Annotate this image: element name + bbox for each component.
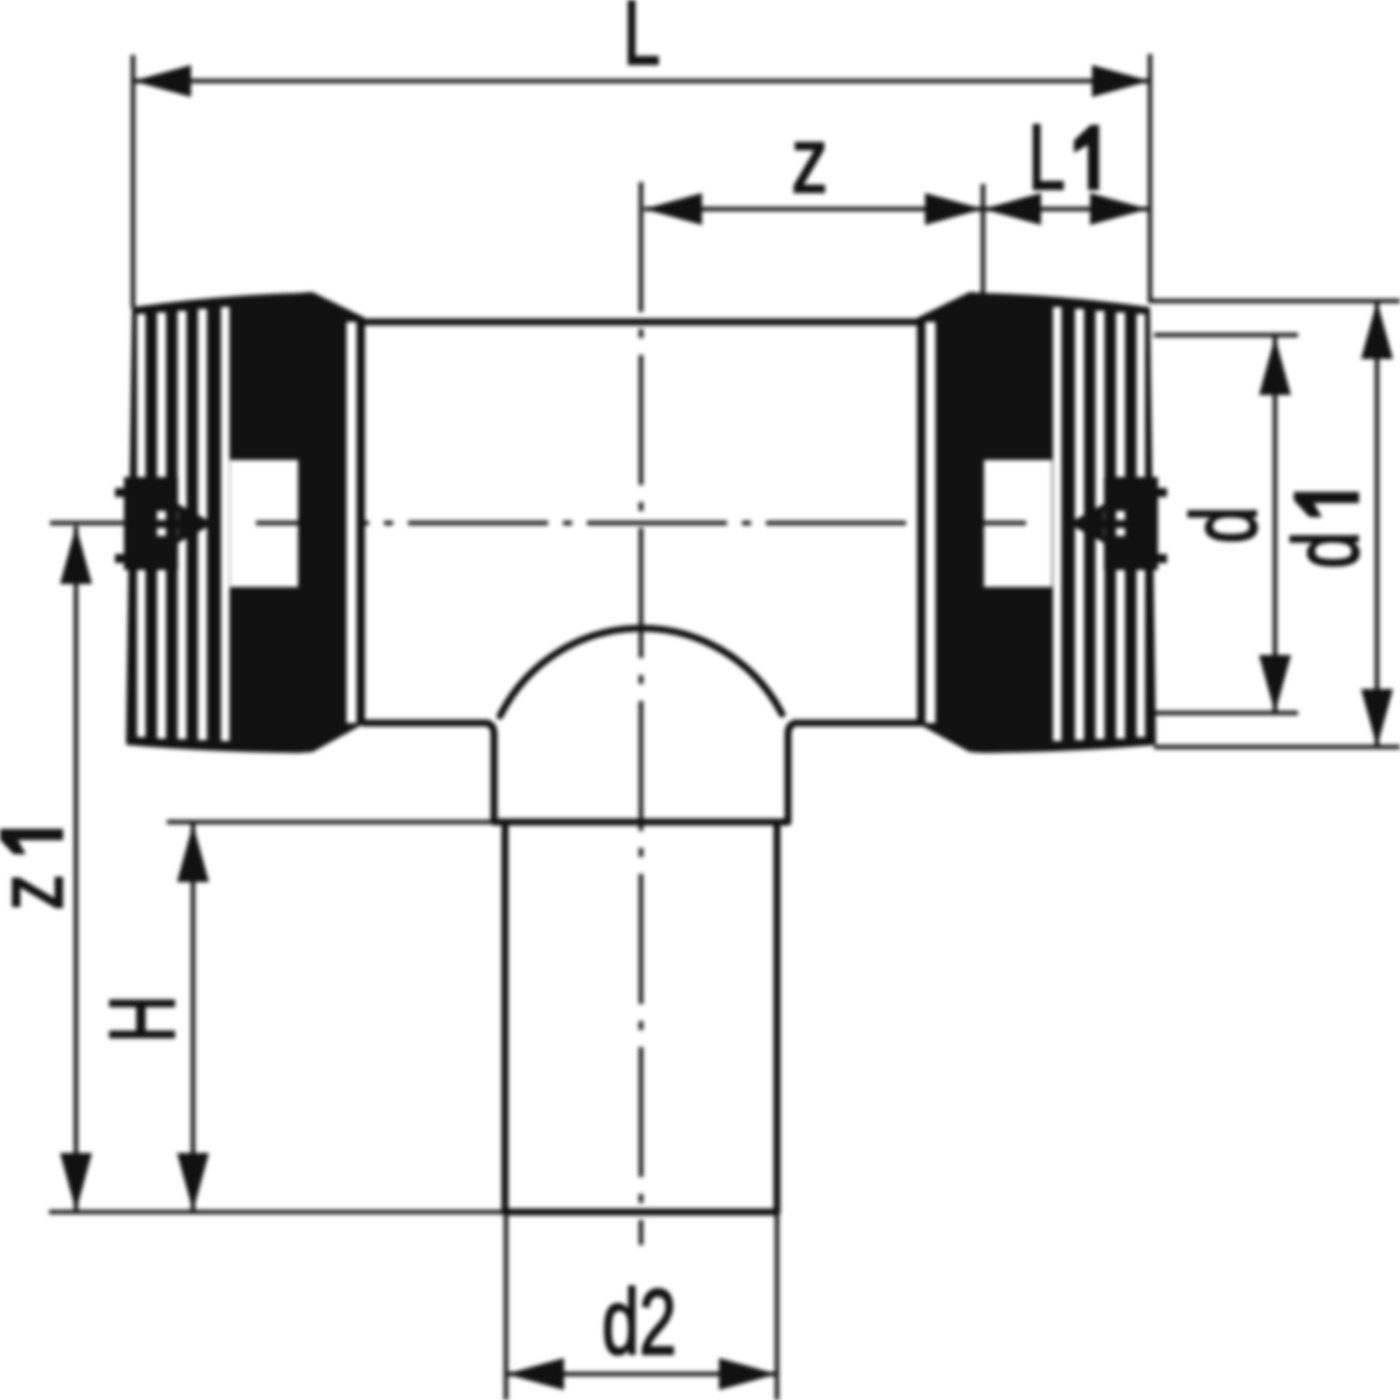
svg-text:L: L xyxy=(1028,106,1065,209)
svg-text:d2: d2 xyxy=(602,1271,676,1374)
svg-text:z: z xyxy=(0,874,82,910)
svg-text:d: d xyxy=(1275,531,1378,568)
svg-text:z: z xyxy=(792,108,828,212)
svg-text:d: d xyxy=(1173,506,1276,543)
svg-text:H: H xyxy=(91,995,194,1043)
svg-text:L: L xyxy=(623,0,660,85)
